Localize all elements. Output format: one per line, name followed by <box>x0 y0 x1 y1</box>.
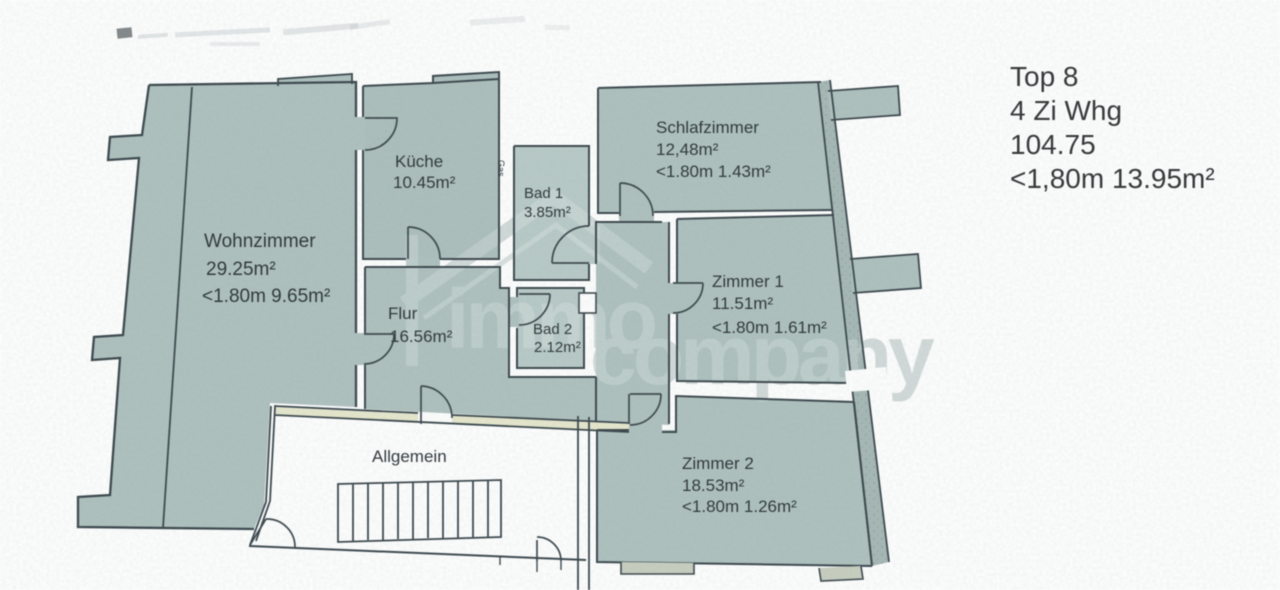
svg-text:104.75: 104.75 <box>1010 129 1096 160</box>
svg-text:<1,80m 13.95m²: <1,80m 13.95m² <box>1010 163 1215 194</box>
svg-text:Top 8: Top 8 <box>1010 61 1079 92</box>
svg-text:4 Zi Whg: 4 Zi Whg <box>1010 95 1122 126</box>
